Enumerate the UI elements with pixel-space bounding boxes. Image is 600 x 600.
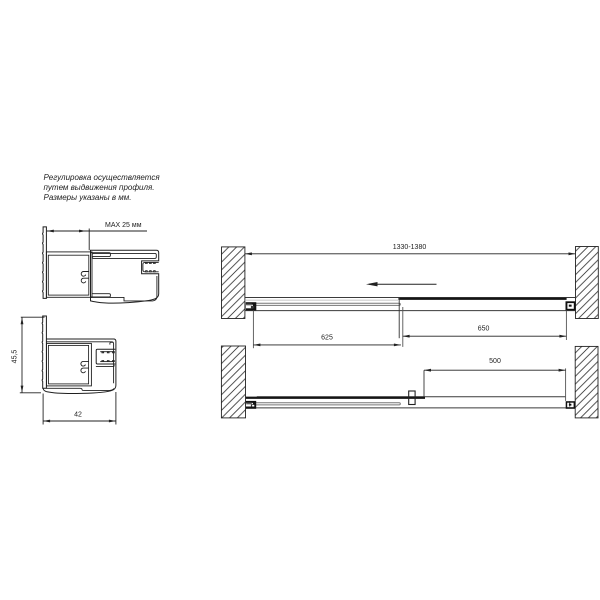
- svg-text:625: 625: [321, 334, 333, 341]
- svg-text:MAX 25 мм: MAX 25 мм: [105, 222, 142, 229]
- svg-text:путем выдвижения профиля.: путем выдвижения профиля.: [44, 183, 155, 192]
- svg-text:1330-1380: 1330-1380: [393, 244, 427, 251]
- svg-text:Регулировка осуществляется: Регулировка осуществляется: [44, 173, 161, 182]
- svg-text:Размеры указаны в мм.: Размеры указаны в мм.: [44, 193, 132, 202]
- svg-text:500: 500: [489, 358, 501, 365]
- svg-text:650: 650: [478, 326, 490, 333]
- svg-text:42: 42: [74, 412, 82, 419]
- svg-text:45,5: 45,5: [12, 350, 19, 364]
